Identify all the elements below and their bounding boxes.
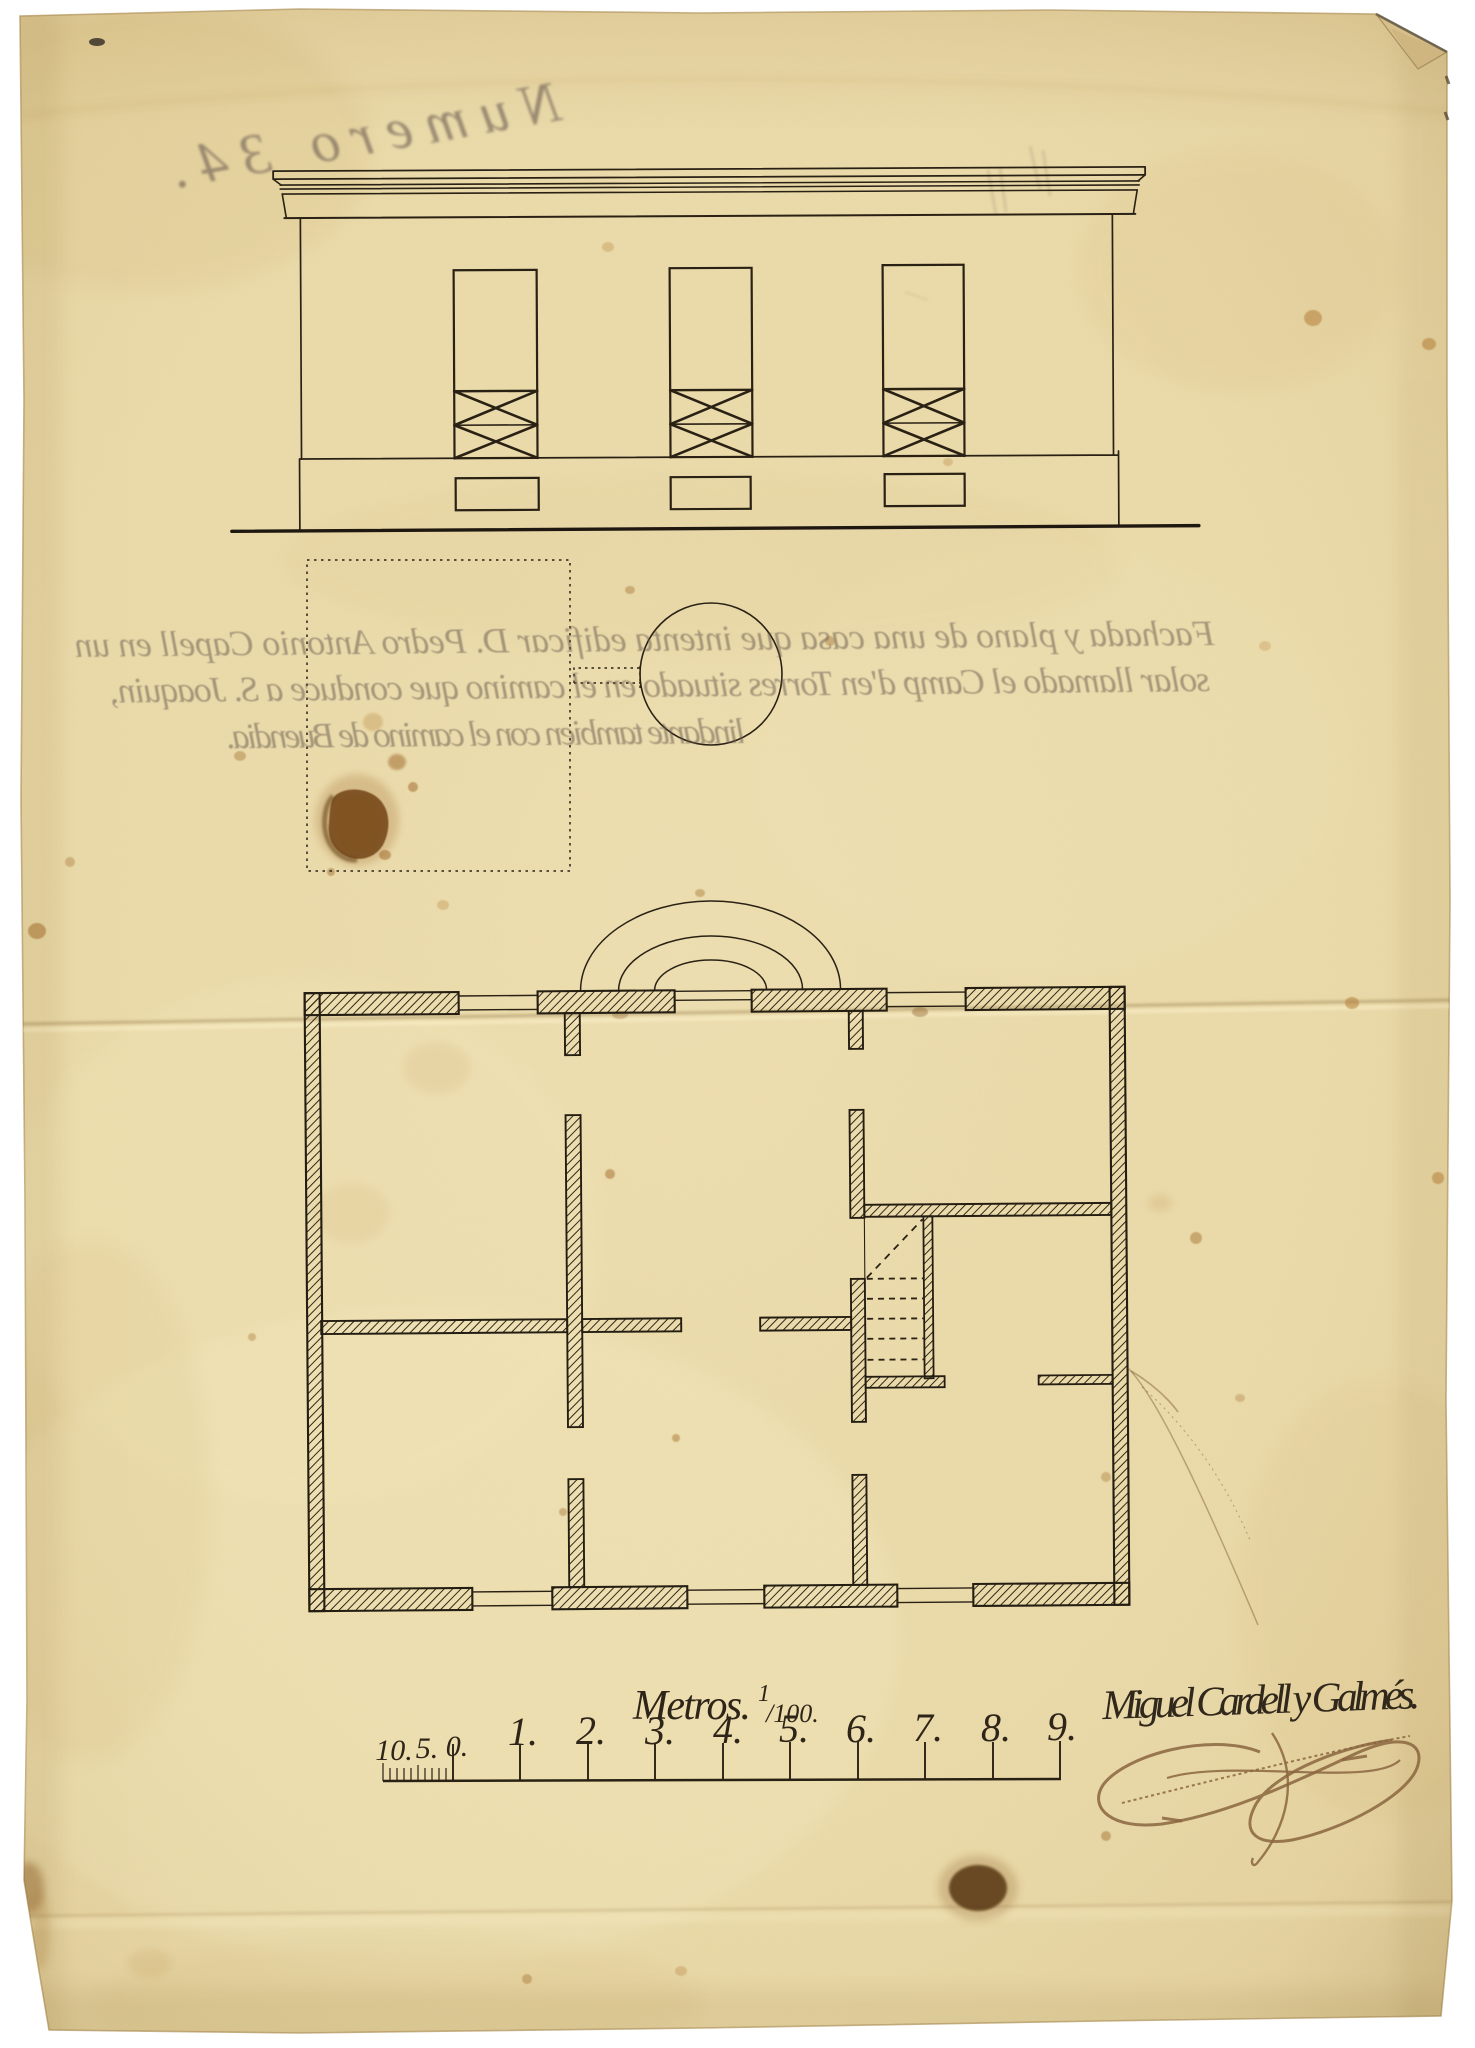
svg-text:5.: 5. — [779, 1706, 809, 1751]
svg-text:3.: 3. — [644, 1708, 675, 1753]
svg-text:9.: 9. — [1047, 1704, 1077, 1749]
svg-text:4.: 4. — [713, 1707, 743, 1752]
svg-text:lindante tambien con el camino: lindante tambien con el camino de Buendi… — [225, 711, 745, 756]
svg-text:5.: 5. — [416, 1732, 439, 1765]
svg-text:7.: 7. — [913, 1705, 943, 1750]
svg-text:8.: 8. — [981, 1705, 1011, 1750]
svg-text:0.: 0. — [446, 1730, 469, 1763]
svg-text:2.: 2. — [576, 1708, 606, 1753]
svg-text:6.: 6. — [846, 1706, 876, 1751]
svg-text:10.: 10. — [375, 1734, 413, 1767]
svg-text:1.: 1. — [508, 1709, 538, 1754]
